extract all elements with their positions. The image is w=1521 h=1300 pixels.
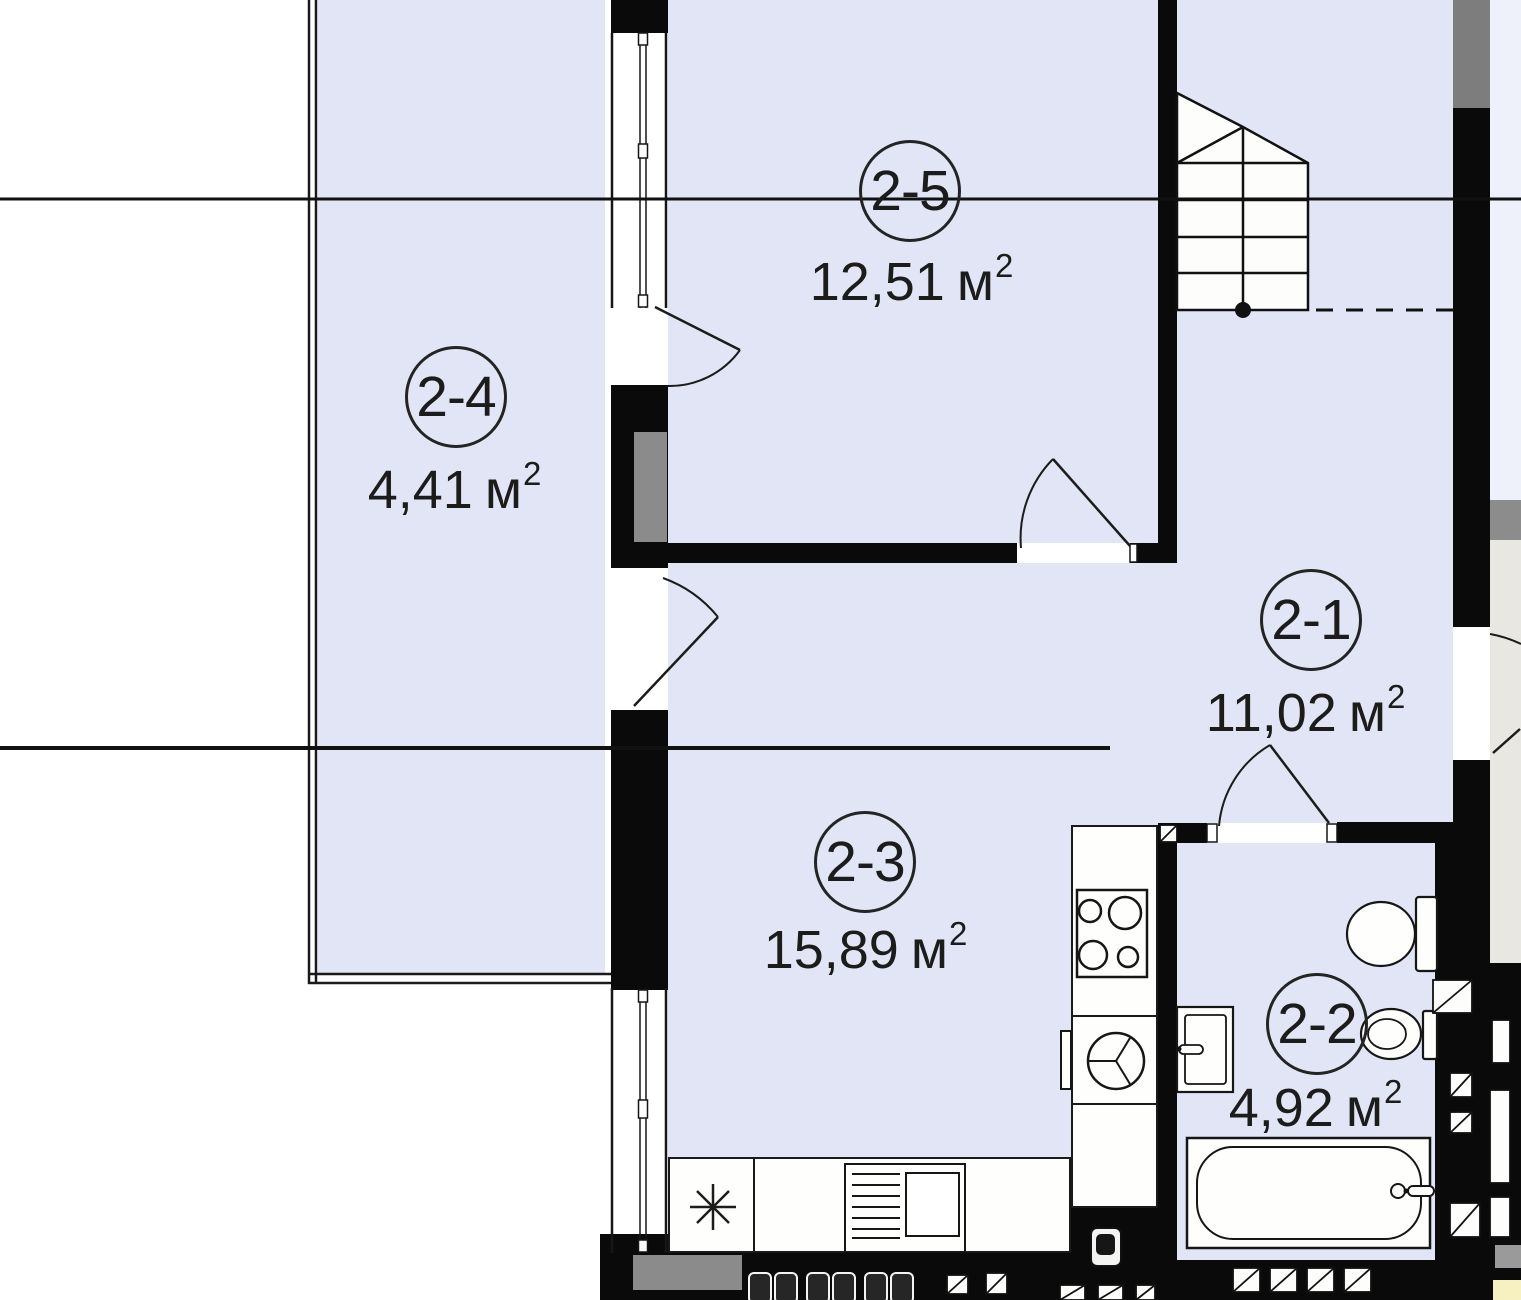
door-swing-icon	[1021, 459, 1130, 548]
door-swing-icon	[634, 578, 718, 706]
room-id: 2-5	[870, 158, 949, 224]
room-label-circle-2-5: 2-5	[859, 140, 961, 242]
area-value: 11,02	[1206, 683, 1337, 743]
asterisk-icon	[690, 1184, 736, 1230]
area-sup: 2	[995, 247, 1013, 284]
window-icon	[612, 33, 666, 308]
cabinet-modules	[749, 1273, 913, 1300]
area-unit: м	[911, 920, 948, 980]
door-swing-icon	[1219, 745, 1329, 826]
room-id: 2-3	[825, 829, 904, 895]
area-sup: 2	[1387, 678, 1405, 715]
area-unit: м	[1346, 1078, 1383, 1138]
area-sup: 2	[949, 915, 967, 952]
door-swing-icon	[655, 307, 740, 386]
bathtub-icon	[1187, 1138, 1434, 1248]
area-unit: м	[485, 460, 522, 520]
stairs-icon	[1177, 93, 1453, 318]
toilet-icon	[1347, 897, 1437, 971]
bidet-icon	[1361, 1009, 1437, 1059]
room-area-2-5: 12,51м2	[810, 251, 1013, 313]
room-area-2-2: 4,92м2	[1229, 1077, 1402, 1139]
area-sup: 2	[523, 455, 541, 492]
dishwasher-icon	[845, 1164, 965, 1252]
kitchen-sink-icon	[1061, 1031, 1144, 1089]
room-id: 2-2	[1277, 991, 1356, 1057]
room-area-2-1: 11,02м2	[1206, 682, 1405, 744]
room-id: 2-1	[1271, 587, 1350, 653]
room-area-2-4: 4,41м2	[368, 459, 541, 521]
room-area-2-3: 15,89м2	[764, 919, 967, 981]
room-label-circle-2-4: 2-4	[405, 346, 507, 448]
window-icon	[612, 988, 666, 1253]
area-value: 12,51	[810, 252, 945, 312]
area-unit: м	[957, 252, 994, 312]
area-unit: м	[1349, 683, 1386, 743]
stove-icon	[1077, 890, 1147, 977]
area-sup: 2	[1384, 1073, 1402, 1110]
area-value: 4,41	[368, 460, 473, 520]
room-id: 2-4	[416, 364, 495, 430]
washbasin-icon	[1177, 1007, 1234, 1092]
room-label-circle-2-1: 2-1	[1260, 569, 1362, 671]
area-value: 15,89	[764, 920, 899, 980]
room-label-circle-2-2: 2-2	[1266, 973, 1368, 1075]
area-value: 4,92	[1229, 1078, 1334, 1138]
boiler-icon	[1091, 1228, 1121, 1266]
room-label-circle-2-3: 2-3	[814, 811, 916, 913]
floor-plan: 2-1 11,02м2 2-2 4,92м2 2-3 15,89м2 2-4 4…	[0, 0, 1521, 1300]
door-swing-icon	[1490, 634, 1521, 753]
